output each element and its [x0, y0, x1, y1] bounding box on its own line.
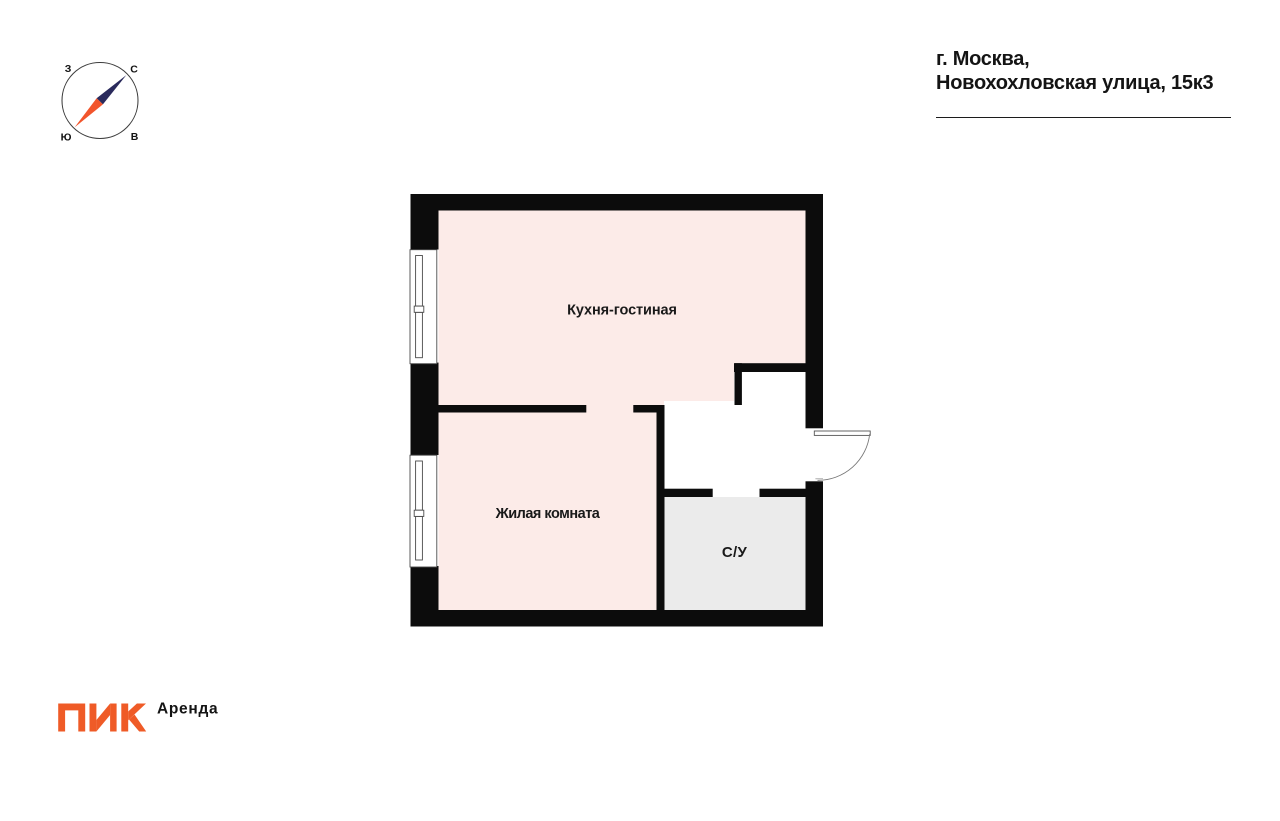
svg-text:С: С [130, 64, 138, 76]
svg-text:Аренда: Аренда [157, 701, 218, 718]
svg-text:Жилая комната: Жилая комната [495, 506, 601, 522]
svg-text:З: З [65, 63, 72, 75]
svg-text:Кухня-гостиная: Кухня-гостиная [567, 303, 677, 319]
svg-text:С/У: С/У [722, 544, 748, 561]
svg-text:В: В [131, 131, 139, 143]
svg-text:Ю: Ю [61, 132, 72, 144]
